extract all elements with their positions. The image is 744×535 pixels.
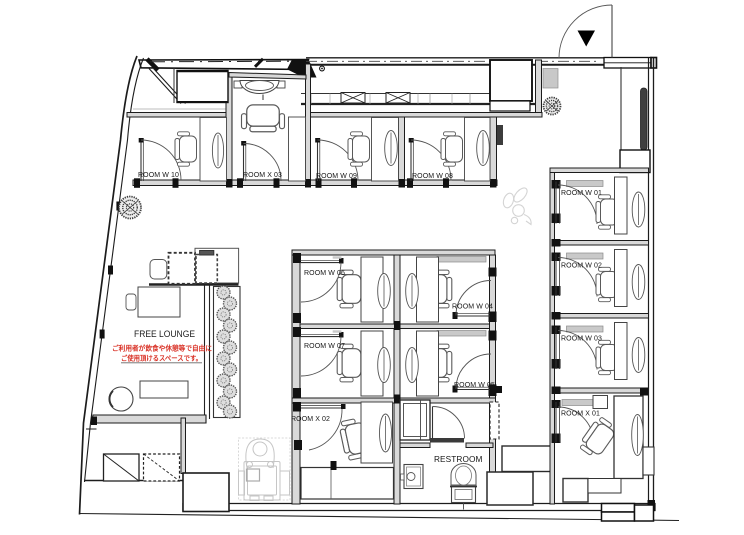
svg-text:ROOM W 04: ROOM W 04 (452, 304, 493, 311)
svg-text:FREE LOUNGE: FREE LOUNGE (134, 328, 195, 339)
svg-text:ROOM W 09: ROOM W 09 (316, 173, 357, 180)
svg-text:ROOM W 10: ROOM W 10 (138, 172, 179, 179)
svg-text:ROOM W 05: ROOM W 05 (454, 382, 495, 389)
svg-text:ROOM W 06: ROOM W 06 (304, 270, 345, 277)
svg-text:ROOM X 02: ROOM X 02 (291, 416, 330, 423)
svg-text:ご利用者が飲食や休憩等で自由に: ご利用者が飲食や休憩等で自由に (112, 344, 212, 353)
svg-text:ROOM W 02: ROOM W 02 (561, 263, 602, 270)
svg-text:ROOM X 01: ROOM X 01 (561, 411, 600, 418)
svg-text:ROOM W 03: ROOM W 03 (561, 336, 602, 343)
svg-text:ROOM W 08: ROOM W 08 (412, 173, 453, 180)
svg-text:ROOM W 01: ROOM W 01 (561, 190, 602, 197)
svg-text:ROOM W 07: ROOM W 07 (304, 343, 345, 350)
svg-text:ご使用頂けるスペースです。: ご使用頂けるスペースです。 (121, 354, 202, 363)
svg-text:ROOM X 03: ROOM X 03 (243, 172, 282, 179)
svg-text:RESTROOM: RESTROOM (434, 455, 483, 464)
